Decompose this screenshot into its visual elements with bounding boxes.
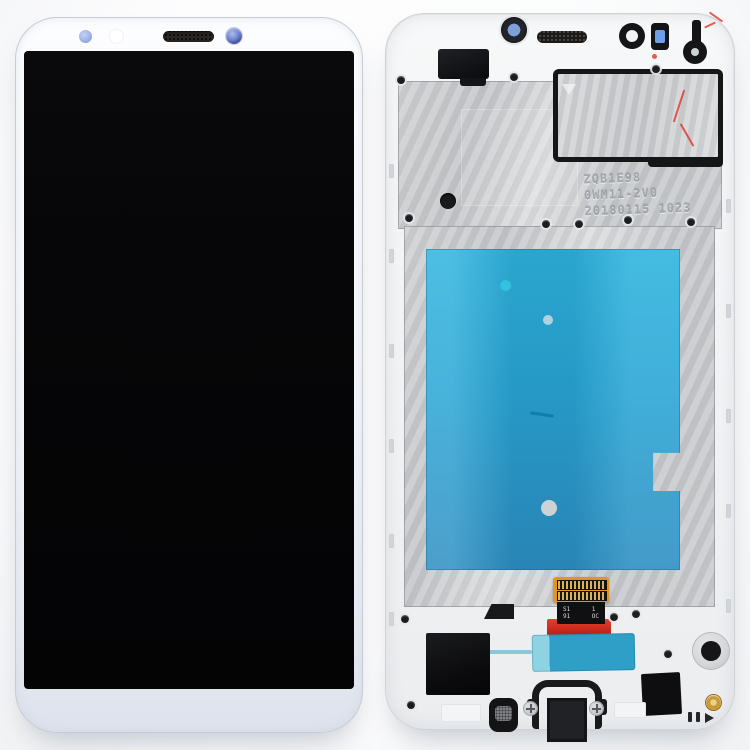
adhesive-tab <box>532 633 636 672</box>
red-qc-mark <box>709 12 723 23</box>
charging-port-block <box>547 698 587 742</box>
rail-notch <box>726 409 731 423</box>
component-cover-left <box>426 633 490 695</box>
camera-ring-hole <box>619 23 645 49</box>
rail-notch <box>726 304 731 318</box>
rail-notch <box>726 504 731 518</box>
screw-icon <box>610 613 618 621</box>
phone-front-view <box>15 17 363 733</box>
screw-icon <box>405 214 413 222</box>
gold-screw-icon <box>706 695 721 710</box>
vibration-motor-icon <box>693 633 729 669</box>
flex-connector <box>553 577 609 603</box>
red-qc-mark <box>652 54 657 59</box>
cross-screw-icon <box>590 702 603 715</box>
screw-icon <box>664 650 672 658</box>
screw-icon <box>407 701 415 709</box>
film-dot <box>499 279 512 292</box>
rail-notch <box>389 439 394 453</box>
rail-notch <box>726 599 731 613</box>
rubber-gasket-step <box>648 157 723 167</box>
lcd-screen <box>24 51 354 689</box>
component-cover-right <box>641 672 682 716</box>
screw-icon <box>397 76 405 84</box>
product-photo: ZQB1E98 0WM11-2V0 20180115 1023 <box>0 0 750 750</box>
rail-notch <box>389 344 394 358</box>
screw-icon <box>401 615 409 623</box>
sensor-window <box>651 23 669 50</box>
jack-ring-icon <box>683 40 707 64</box>
screw-icon <box>632 610 640 618</box>
serial-stamp: ZQB1E98 0WM11-2V0 20180115 1023 <box>583 167 725 220</box>
rail-notch <box>389 164 394 178</box>
connector-pins <box>557 591 607 601</box>
screw-icon <box>542 220 550 228</box>
ink-mark <box>530 411 554 417</box>
rubber-gasket <box>553 69 723 162</box>
screw-icon <box>652 65 660 73</box>
front-camera-module <box>438 49 489 79</box>
screw-icon <box>575 220 583 228</box>
red-qc-mark <box>704 22 716 29</box>
rail-notch <box>389 534 394 548</box>
screw-icon <box>687 218 695 226</box>
mold-tick <box>688 712 692 722</box>
frame-hole <box>440 193 456 209</box>
cross-screw-icon <box>524 702 537 715</box>
earpiece-mesh-slot <box>537 31 587 43</box>
proximity-sensor-icon <box>79 30 92 43</box>
notification-led-icon <box>110 30 123 43</box>
flex-marking-left: S191 <box>563 606 570 620</box>
arrow-down-icon <box>562 84 576 95</box>
phone-frame-back-view: ZQB1E98 0WM11-2V0 20180115 1023 <box>385 13 735 730</box>
film-dot <box>541 500 557 516</box>
blue-protective-film <box>426 249 680 570</box>
flex-chip: S191 1OC <box>557 602 605 624</box>
rail-notch <box>389 612 394 626</box>
earpiece-speaker-icon <box>163 31 214 42</box>
screw-icon <box>510 73 518 81</box>
frame-detail <box>614 702 646 718</box>
camera-lens-icon <box>501 17 527 43</box>
rail-notch <box>726 199 731 213</box>
flex-marking-right: 1OC <box>592 606 599 620</box>
mold-tick <box>696 712 700 722</box>
screw-icon <box>624 216 632 224</box>
front-camera-icon <box>226 28 242 44</box>
loudspeaker-mesh-icon <box>489 698 518 732</box>
film-dot <box>543 315 553 325</box>
rail-notch <box>389 249 394 263</box>
mold-triangle <box>705 713 714 723</box>
frame-detail <box>441 704 481 722</box>
connector-pins <box>557 580 607 590</box>
